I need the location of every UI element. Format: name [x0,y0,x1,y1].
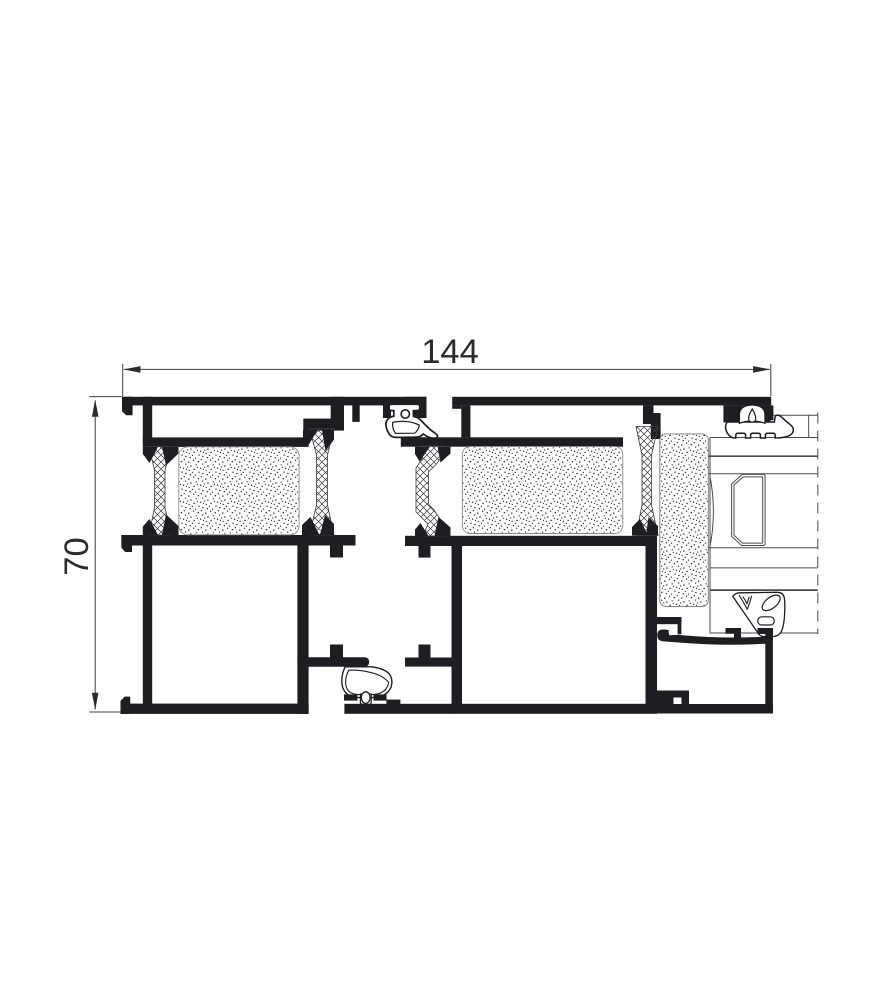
svg-text:144: 144 [421,333,479,371]
svg-text:70: 70 [58,537,96,575]
